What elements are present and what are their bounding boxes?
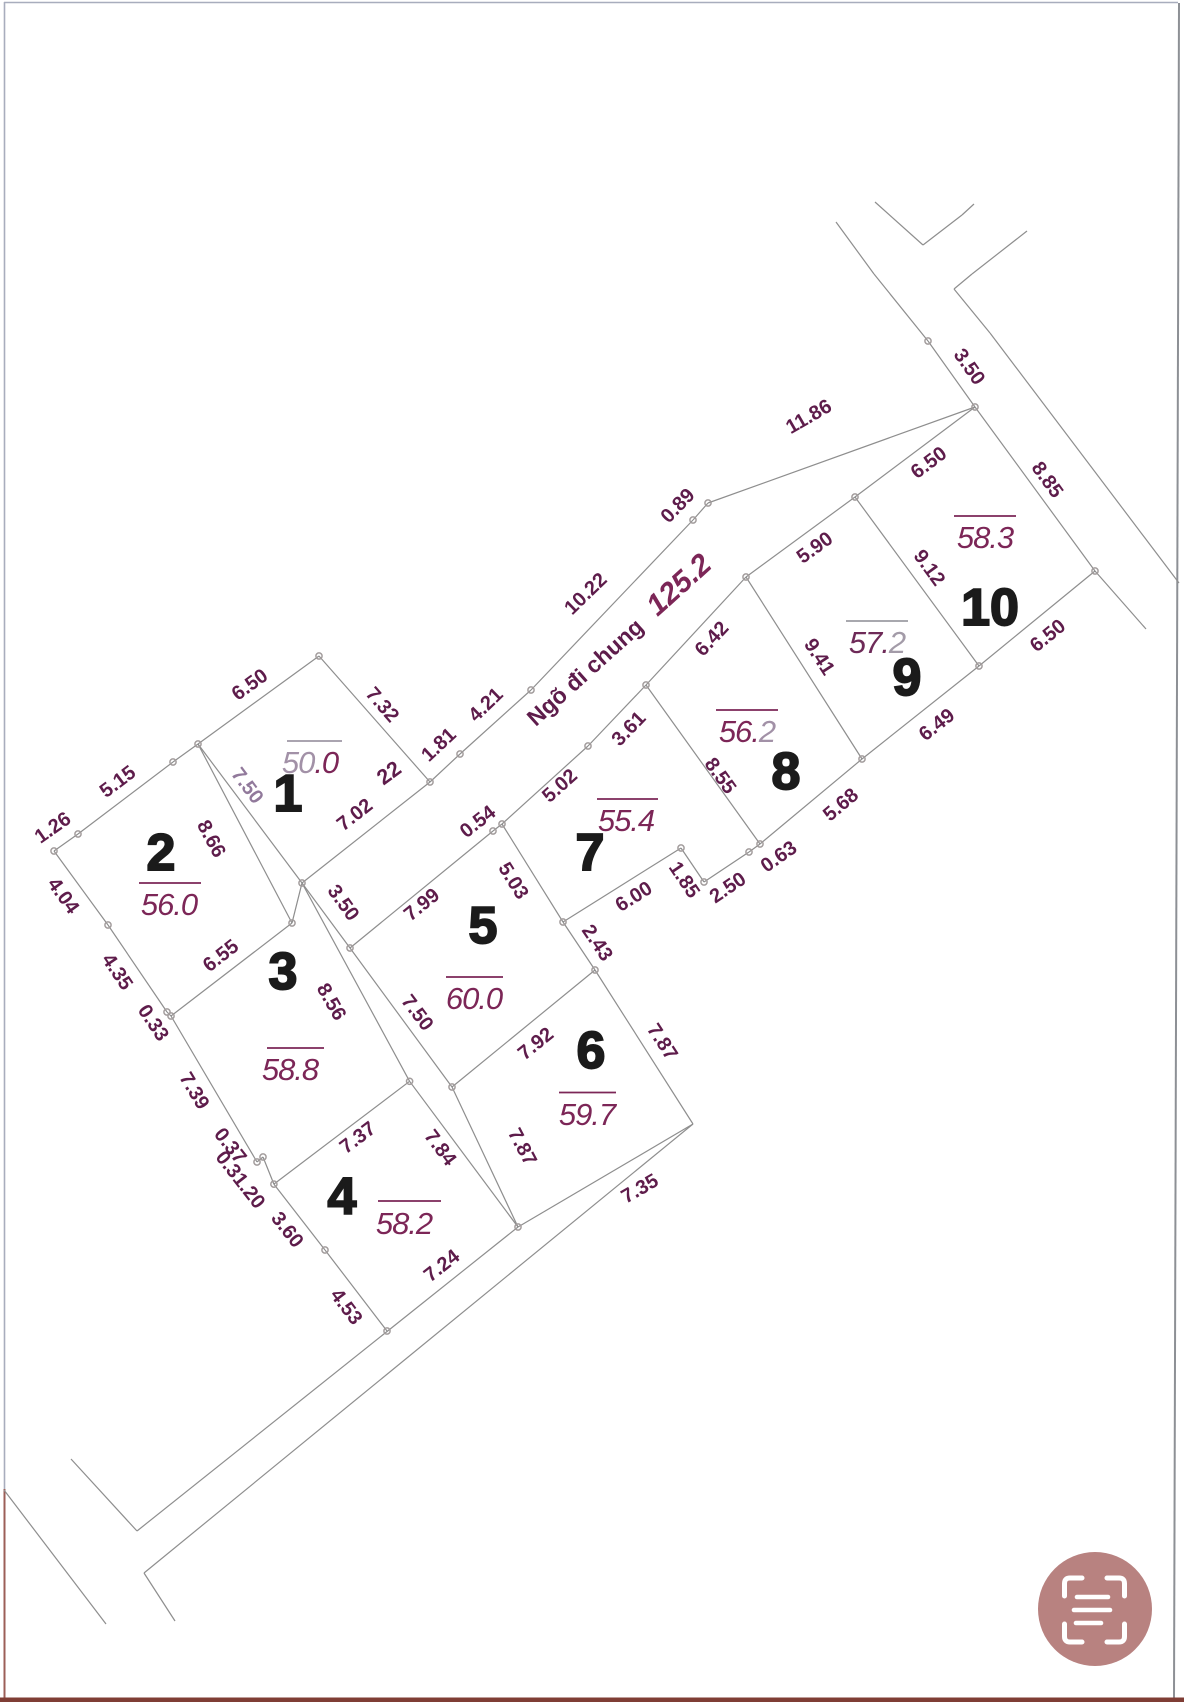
svg-text:59.7: 59.7 <box>559 1097 618 1132</box>
svg-text:9: 9 <box>893 649 922 707</box>
svg-text:58.2: 58.2 <box>376 1206 433 1241</box>
svg-text:55.4: 55.4 <box>598 803 655 838</box>
svg-text:56.2: 56.2 <box>719 714 776 749</box>
svg-text:56.0: 56.0 <box>141 887 198 922</box>
svg-text:60.0: 60.0 <box>446 981 503 1016</box>
svg-text:10: 10 <box>961 579 1019 637</box>
svg-text:1: 1 <box>274 765 303 823</box>
svg-text:58.8: 58.8 <box>262 1052 320 1087</box>
svg-text:6: 6 <box>577 1022 606 1080</box>
svg-text:5: 5 <box>469 897 498 955</box>
svg-text:7: 7 <box>576 824 605 882</box>
svg-text:2: 2 <box>147 824 176 882</box>
svg-text:8: 8 <box>772 743 801 801</box>
svg-text:4: 4 <box>328 1168 357 1226</box>
svg-text:58.3: 58.3 <box>957 520 1014 555</box>
svg-text:3: 3 <box>269 943 298 1001</box>
